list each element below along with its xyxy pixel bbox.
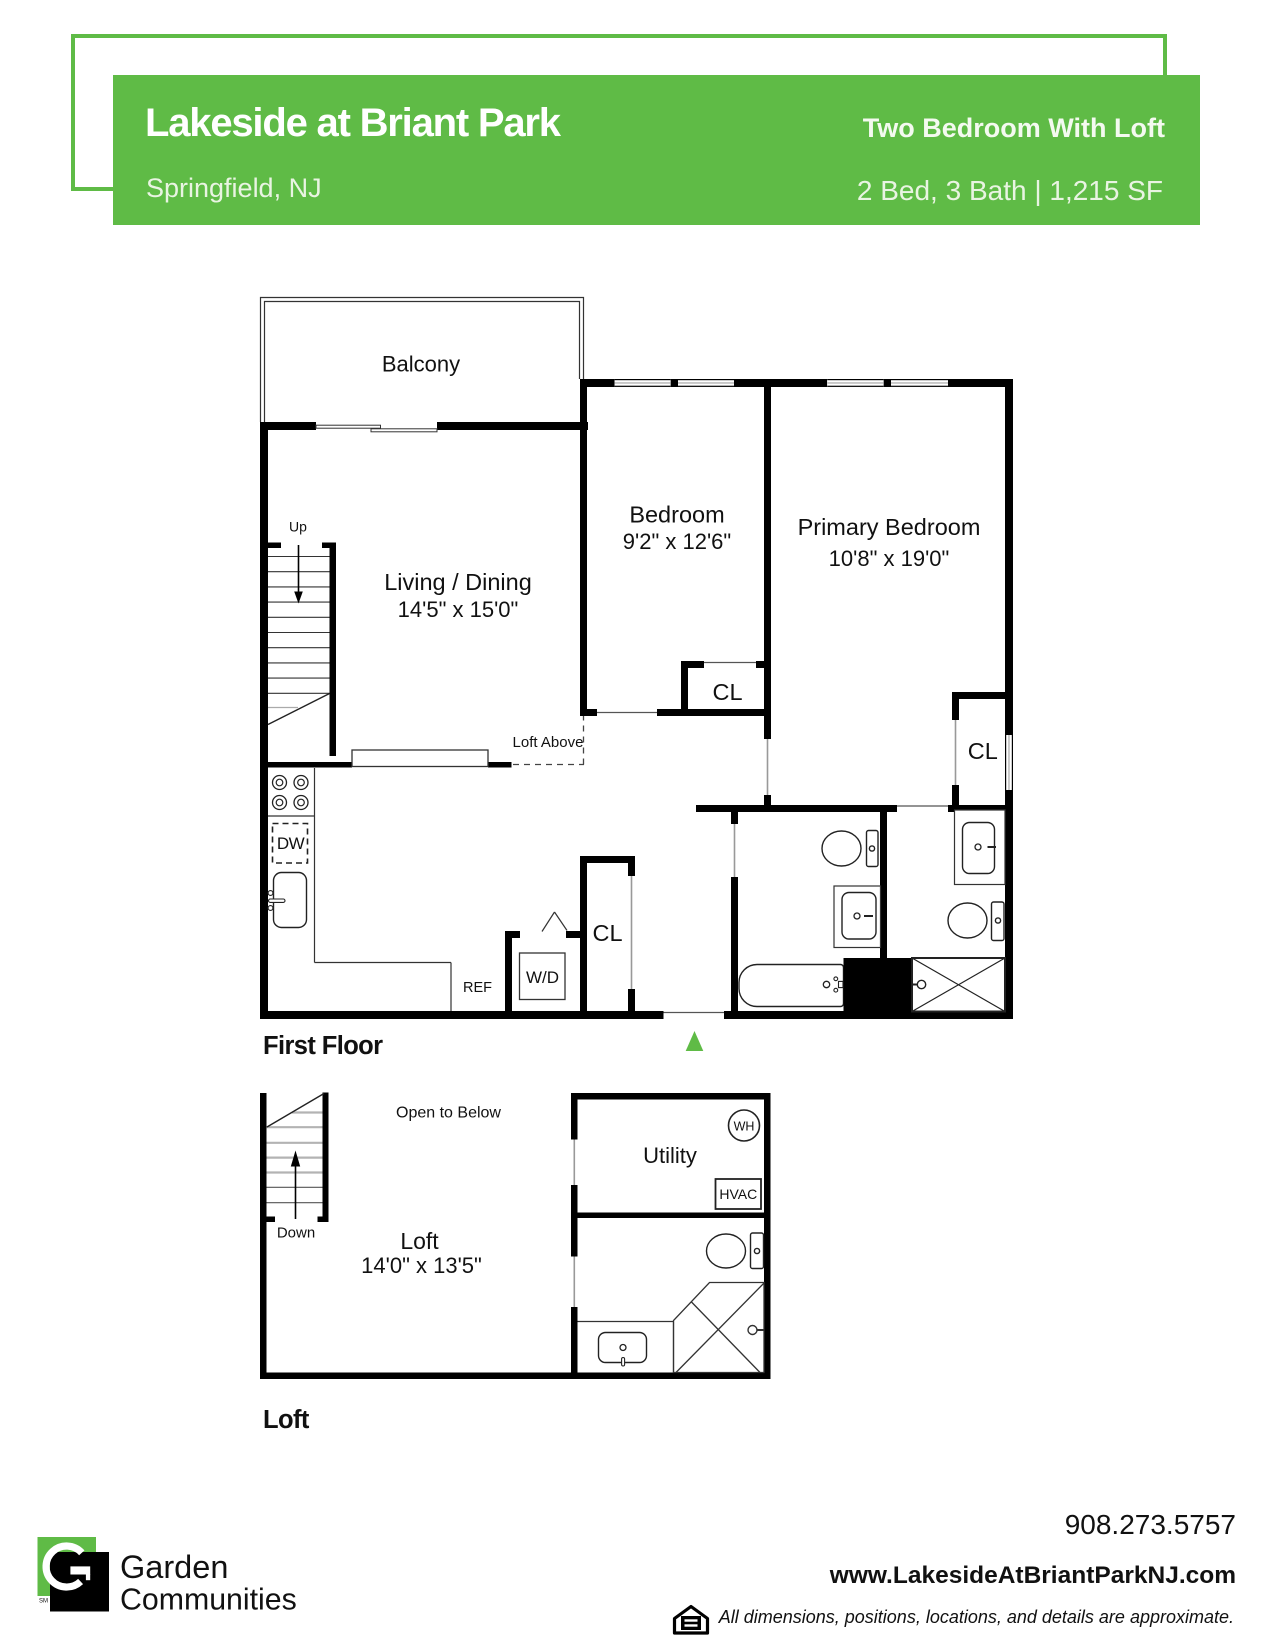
svg-text:Primary Bedroom: Primary Bedroom: [798, 514, 981, 540]
svg-text:14'0" x 13'5": 14'0" x 13'5": [361, 1253, 482, 1278]
svg-text:Utility: Utility: [643, 1143, 697, 1168]
svg-text:CL: CL: [968, 738, 998, 764]
svg-text:Communities: Communities: [120, 1584, 297, 1617]
svg-text:W/D: W/D: [526, 968, 559, 987]
svg-text:10'8" x 19'0": 10'8" x 19'0": [829, 546, 950, 571]
svg-text:Loft: Loft: [400, 1228, 439, 1254]
svg-text:SM: SM: [39, 1599, 48, 1605]
svg-text:CL: CL: [712, 679, 742, 705]
svg-text:Down: Down: [277, 1225, 315, 1242]
svg-text:14'5" x 15'0": 14'5" x 15'0": [398, 597, 519, 622]
svg-text:Open to Below: Open to Below: [396, 1105, 501, 1122]
svg-text:9'2" x 12'6": 9'2" x 12'6": [623, 529, 731, 554]
svg-text:HVAC: HVAC: [719, 1186, 757, 1202]
svg-text:Up: Up: [289, 519, 307, 535]
svg-text:CL: CL: [592, 920, 622, 946]
svg-text:Loft: Loft: [263, 1406, 310, 1434]
svg-text:Balcony: Balcony: [382, 352, 460, 377]
svg-text:Bedroom: Bedroom: [629, 502, 724, 528]
svg-text:REF: REF: [463, 980, 492, 996]
svg-text:Loft Above: Loft Above: [513, 734, 584, 751]
svg-text:Living / Dining: Living / Dining: [384, 569, 532, 595]
svg-text:Garden: Garden: [120, 1549, 228, 1585]
svg-text:WH: WH: [734, 1120, 755, 1134]
svg-text:First Floor: First Floor: [263, 1032, 383, 1060]
svg-text:DW: DW: [277, 834, 305, 853]
